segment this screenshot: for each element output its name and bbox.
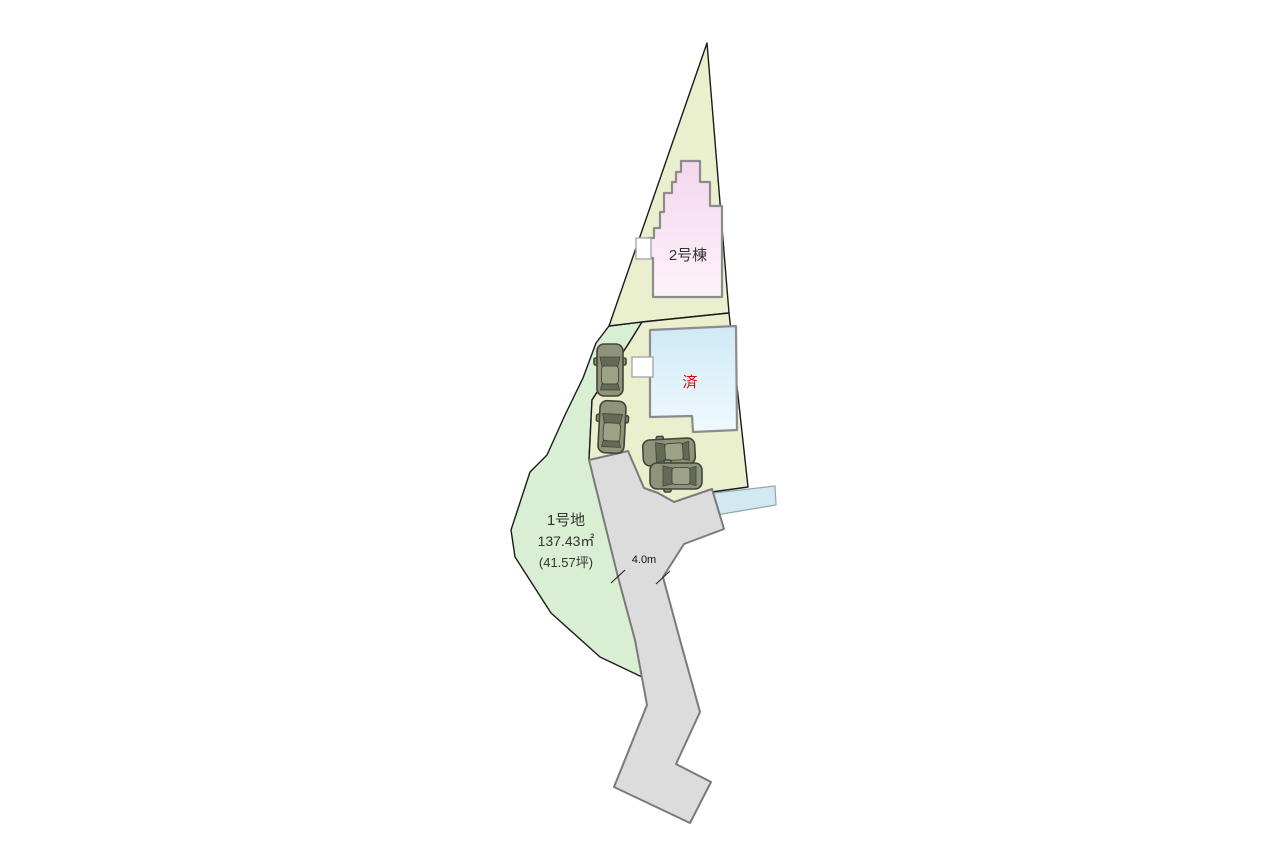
building-2-porch bbox=[636, 238, 651, 259]
site-plan-canvas bbox=[0, 0, 1280, 867]
lot-1-name: 1号地 bbox=[504, 510, 628, 531]
lot-1-area-tsubo: (41.57坪) bbox=[504, 552, 628, 573]
car-icon bbox=[594, 344, 626, 396]
lot-1-label: 1号地 137.43㎡ (41.57坪) bbox=[504, 510, 628, 573]
building-sold-porch bbox=[632, 357, 653, 377]
road-width-label: 4.0m bbox=[622, 554, 666, 566]
site-plan: 2号棟 済 1号地 137.43㎡ (41.57坪) 4.0m bbox=[0, 0, 1280, 867]
building-2-label: 2号棟 bbox=[658, 244, 718, 265]
car-icon bbox=[595, 400, 630, 454]
lot-1-area-m2: 137.43㎡ bbox=[504, 531, 628, 552]
sold-badge: 済 bbox=[675, 371, 705, 392]
car-icon bbox=[650, 460, 702, 492]
